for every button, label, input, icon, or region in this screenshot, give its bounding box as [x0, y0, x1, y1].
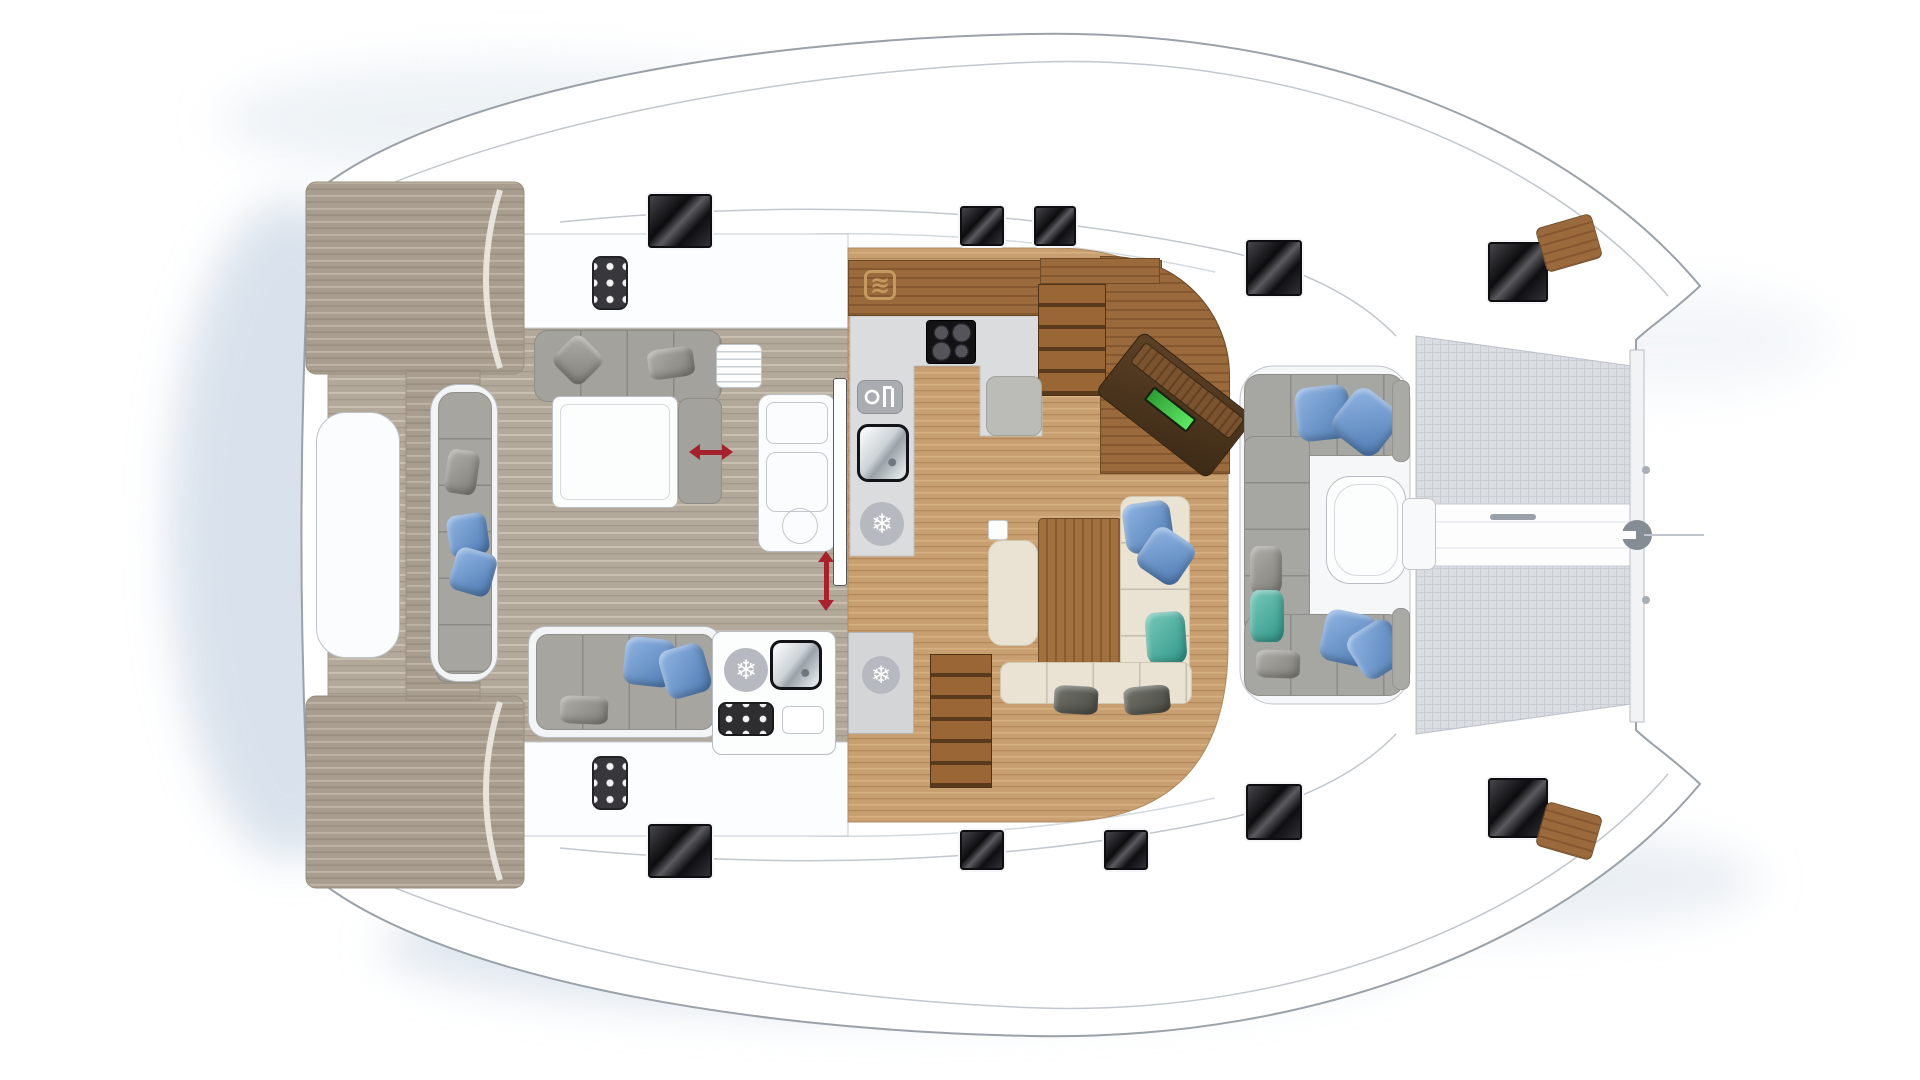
saloon-side-cube — [988, 520, 1008, 540]
deck-hatch-6 — [648, 824, 712, 878]
bow-vent-bottom — [1535, 801, 1603, 861]
deck-hatch-1 — [648, 194, 712, 248]
transom-bench-pillow-gray — [443, 448, 481, 496]
helm-console-panel-1 — [766, 402, 828, 444]
deck-hatch-2 — [960, 206, 1004, 246]
deck-hatch-7 — [960, 830, 1004, 870]
wet-bar-tray — [782, 706, 824, 734]
deck-hatch-3 — [1034, 206, 1076, 246]
fwd-cockpit-table — [1326, 476, 1406, 584]
bow-vent-top — [1535, 213, 1603, 273]
deck-hatch-5 — [1488, 242, 1548, 302]
helm-console-circle — [782, 508, 818, 544]
stair-landing-port — [1040, 258, 1160, 284]
fwd-pillow-gray-1 — [1250, 546, 1282, 594]
saloon-fridge-icon: ❄ — [862, 656, 900, 694]
stairs-starboard-hull — [930, 654, 992, 788]
trampoline-pad-top — [1392, 380, 1410, 462]
dining-bench-pillow-1 — [1053, 685, 1098, 715]
fwd-pillow-teal — [1250, 590, 1284, 642]
trampoline-pad-bottom — [1392, 608, 1410, 690]
aft-sofa-bottom-pillow-gray — [560, 695, 609, 725]
wet-bar-fridge-icon: ❄ — [724, 648, 768, 692]
cockpit-louver-vent — [716, 344, 762, 388]
dining-chaise — [988, 540, 1038, 646]
window-slide-arrow — [690, 444, 732, 460]
mast-step-console — [1402, 498, 1436, 570]
galley-fridge-icon: ❄ — [860, 502, 904, 546]
catamaran-deck-plan: ❄≋❄❄ — [0, 0, 1920, 1080]
wet-bar-sink — [770, 640, 822, 690]
transom-control-panel-bottom — [592, 756, 628, 810]
fwd-pillow-gray-2 — [1256, 649, 1301, 679]
nav-seat — [986, 376, 1042, 436]
galley-sink — [857, 424, 909, 482]
stern-davit-locker — [316, 412, 400, 658]
furniture-layer: ❄≋❄❄ — [0, 0, 1920, 1080]
dining-table — [1038, 518, 1122, 668]
sliding-door-panel — [833, 378, 847, 586]
transom-control-panel-top — [592, 256, 628, 310]
cooktop — [926, 320, 976, 364]
door-slide-arrow — [818, 552, 834, 610]
deck-hatch-8 — [1104, 830, 1148, 870]
stairs-port-hull — [1038, 284, 1106, 396]
dining-sofa-pillow-teal — [1144, 611, 1188, 666]
helm-console-panel-2 — [766, 452, 828, 512]
wet-bar-grill — [718, 702, 774, 736]
cockpit-table — [552, 396, 678, 508]
dining-bench-pillow-2 — [1123, 684, 1171, 716]
deck-hatch-9 — [1246, 784, 1302, 840]
deck-hatch-4 — [1246, 240, 1302, 296]
microwave-icon: ≋ — [864, 270, 896, 300]
dishwasher-icon — [857, 380, 903, 414]
